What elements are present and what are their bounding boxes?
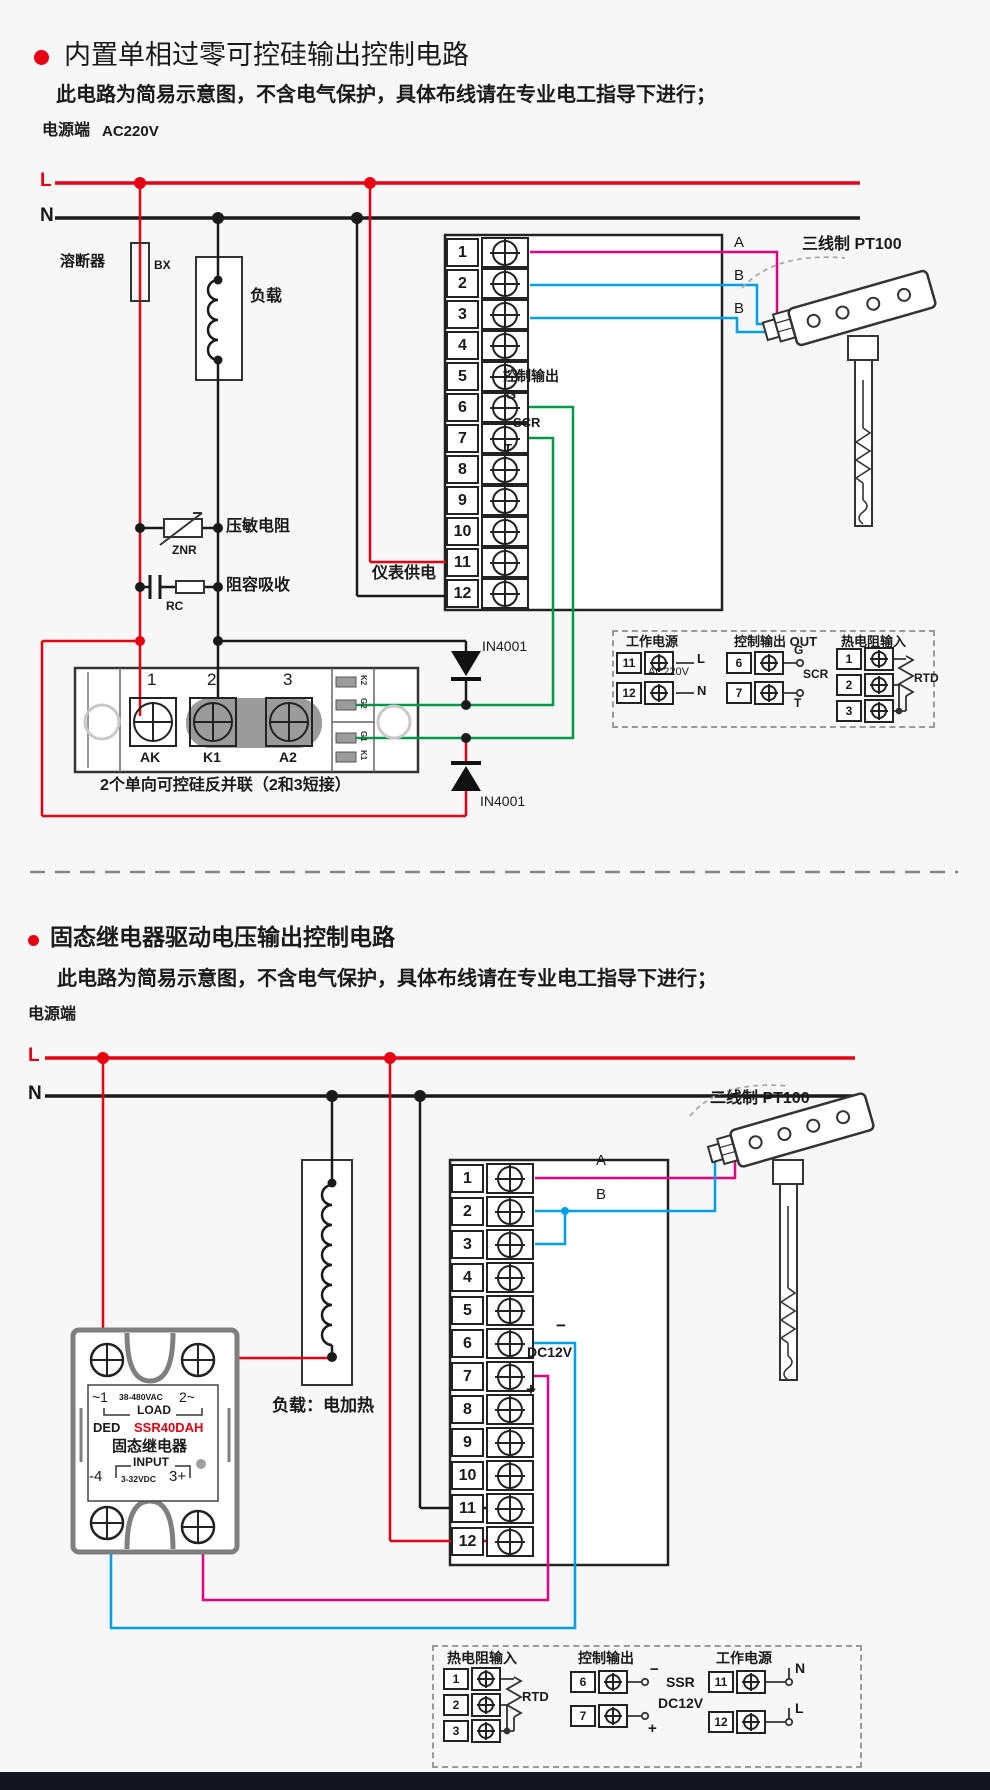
ssr-name: 固态继电器 [112,1438,187,1455]
legend2-minus: − [650,1661,659,1678]
terminal-number: 12 [616,682,642,704]
pt100-sensor-3wire [742,257,936,526]
ssr-model: SSR40DAH [134,1421,203,1436]
terminal-number: 12 [708,1711,734,1733]
rc-resistor-symbol [176,581,204,593]
ssr-load-label: LOAD [137,1404,171,1418]
terminal-screw [471,1667,501,1691]
voltage-label-1: AC220V [102,123,159,140]
terminal-number: 2 [836,674,862,696]
t-label: T [504,442,512,457]
terminal-screw [486,1229,534,1260]
scr-module-num-2: 2 [207,670,216,690]
legend1-rtd: RTD [914,672,939,686]
terminal-number: 7 [570,1705,596,1727]
sensor-label-2: 二线制 PT100 [710,1090,810,1108]
terminal-screw [754,681,784,705]
terminal-screw [481,547,529,578]
terminal-screw [481,330,529,361]
scr-side-pin-k1b: K1 [359,750,368,760]
rc-label: 阻容吸收 [226,577,290,595]
terminal-screw [864,699,894,723]
terminal-screw [481,485,529,516]
g-label: G [506,388,516,403]
legend1-n: N [697,684,706,699]
wire-a-label-1: A [734,234,744,251]
terminal-number: 1 [443,1668,469,1690]
circuit2-subtitle: 此电路为简易示意图，不含电气保护，具体布线请在专业电工指导下进行； [57,968,717,991]
terminal-number: 3 [451,1230,484,1259]
terminal-screw [481,299,529,330]
rc-code: RC [166,600,183,614]
terminal-number: 11 [708,1671,734,1693]
terminal-screw [471,1693,501,1717]
terminal-number: 10 [451,1461,484,1490]
terminal-number: 12 [446,579,479,608]
terminal-screw [736,1710,766,1734]
ssr-brand: DED [93,1421,120,1436]
plus-label: + [526,1380,536,1400]
legend2-ssr: SSR [666,1674,695,1690]
terminal-screw [481,454,529,485]
schematic-page: 内置单相过零可控硅输出控制电路 此电路为简易示意图，不含电气保护，具体布线请在专… [0,0,990,1790]
legend2-plus: + [648,1720,657,1737]
legend2-output-title: 控制输出 [578,1650,634,1666]
fuse-label: 溶断器 [60,253,105,270]
legend2-dc12v: DC12V [658,1695,703,1711]
title-bullet-icon [34,50,49,65]
scr-module-num-1: 1 [147,670,156,690]
terminal-number: 2 [451,1197,484,1226]
terminal-screw [481,237,529,268]
footer-bar [0,1772,990,1790]
terminal-screw [598,1670,628,1694]
circuit2-title: 固态继电器驱动电压输出控制电路 [50,924,395,950]
terminal-number: 8 [451,1395,484,1424]
terminal-number: 4 [451,1263,484,1292]
diode-bottom-label: IN4001 [480,793,525,809]
legend1-scr: SCR [803,668,828,682]
terminal-screw [486,1262,534,1293]
terminal-number: 2 [446,269,479,298]
circuit1-subtitle: 此电路为简易示意图，不含电气保护，具体布线请在专业电工指导下进行； [56,84,716,107]
diode-top-label: IN4001 [482,638,527,654]
terminal-number: 7 [726,682,752,704]
terminal-number: 6 [446,393,479,422]
varistor-label: 压敏电阻 [226,518,290,536]
terminal-number: 10 [446,517,479,546]
varistor-code: ZNR [172,544,197,558]
terminal-number: 6 [451,1329,484,1358]
terminal-screw [486,1493,534,1524]
circuit1-title: 内置单相过零可控硅输出控制电路 [64,40,469,71]
sensor-label-1: 三线制 PT100 [802,236,902,254]
legend1-t: T [794,697,801,711]
terminal-number: 7 [451,1362,484,1391]
ssr-dc-rating: 3-32VDC [121,1475,156,1485]
terminal-screw [486,1196,534,1227]
ssr-ac-rating: 38-480VAC [119,1393,163,1403]
legend1-ac220v: AC220V [648,666,689,679]
terminal-number: 12 [451,1527,484,1556]
pt100-sensor-2wire [690,1085,875,1380]
terminal-number: 6 [726,652,752,674]
terminal-screw [644,681,674,705]
meter-supply-label: 仪表供电 [372,565,436,583]
power-terminal-label-2: 电源端 [28,1006,76,1024]
line-l-label-2: L [28,1045,40,1067]
title2-bullet-icon [28,935,39,946]
scr-module-pin-k1: K1 [203,749,221,765]
terminal-number: 2 [443,1694,469,1716]
scr-module-pin-a2: A2 [279,749,297,765]
terminal-screw [598,1704,628,1728]
terminal-number: 5 [451,1296,484,1325]
terminal-screw [864,647,894,671]
wire-b2-label-1: B [734,300,744,317]
terminal-number: 5 [446,362,479,391]
ssr-ac-left: ~1 [92,1389,108,1405]
legend2-rtd: RTD [522,1690,549,1705]
line-l-label-1: L [40,170,52,192]
scr-side-pin-g1: G1 [359,731,368,742]
wire-b1-label-1: B [734,267,744,284]
terminal-number: 11 [616,652,642,674]
terminal-screw [481,578,529,609]
control-output-label-1: 控制输出 [503,368,559,384]
terminal-number: 6 [570,1671,596,1693]
terminal-screw [486,1295,534,1326]
scr-module-num-3: 3 [283,670,292,690]
varistor-symbol [160,513,202,545]
legend2-n: N [795,1660,805,1676]
terminal-number: 8 [446,455,479,484]
load-caption-2: 负载：电加热 [272,1396,374,1416]
legend1-l: L [697,652,705,667]
legend1-rtd-title: 热电阻输入 [841,635,906,650]
terminal-screw [736,1670,766,1694]
terminal-screw [864,673,894,697]
load-label-1: 负载 [250,288,282,306]
terminal-screw [471,1719,501,1743]
legend2-l: L [795,1700,804,1716]
minus-label: − [556,1316,566,1336]
terminal-number: 1 [836,648,862,670]
line-n-label-2: N [28,1083,42,1105]
power-terminal-label-1: 电源端 [42,122,90,140]
terminal-screw [754,651,784,675]
wire-a-label-2: A [596,1152,606,1169]
terminal-screw [486,1163,534,1194]
legend1-power-title: 工作电源 [626,635,678,650]
terminal-number: 3 [836,700,862,722]
terminal-number: 9 [451,1428,484,1457]
wire-b-label-2: B [596,1186,606,1203]
terminal-number: 7 [446,424,479,453]
terminal-screw [486,1526,534,1557]
scr-label: SCR [513,416,540,431]
terminal-number: 11 [451,1494,484,1523]
scr-side-pin-g2: G2 [359,698,368,709]
terminal-number: 3 [443,1720,469,1742]
legend1-g: G [794,644,803,658]
terminal-number: 3 [446,300,479,329]
dc12v-label: DC12V [527,1344,572,1360]
ssr-ac-right: 2~ [179,1389,195,1405]
scr-module-pin-ak: AK [140,749,160,765]
terminal-number: 1 [446,238,479,267]
line-n-label-1: N [40,205,54,227]
terminal-number: 9 [446,486,479,515]
ssr-dc-left: -4 [89,1468,102,1485]
legend2-power-title: 工作电源 [716,1650,772,1666]
terminal-screw [486,1427,534,1458]
legend1-output-title: 控制输出 OUT [734,635,817,650]
terminal-screw [481,268,529,299]
ssr-dc-right: 3+ [169,1468,186,1485]
terminal-screw [481,516,529,547]
scr-side-pin-k2: K2 [359,675,368,685]
terminal-number: 11 [446,548,479,577]
fuse-code: BX [154,259,171,273]
scr-module-caption: 2个单向可控硅反并联（2和3短接） [100,777,351,795]
terminal-number: 1 [451,1164,484,1193]
diode-in4001-top [451,651,481,679]
ssr-input-label: INPUT [133,1456,169,1470]
terminal-number: 4 [446,331,479,360]
diode-in4001-bottom [451,763,481,791]
terminal-screw [486,1460,534,1491]
load-coil-2-box [302,1160,352,1385]
legend2-rtd-title: 热电阻输入 [447,1650,517,1666]
